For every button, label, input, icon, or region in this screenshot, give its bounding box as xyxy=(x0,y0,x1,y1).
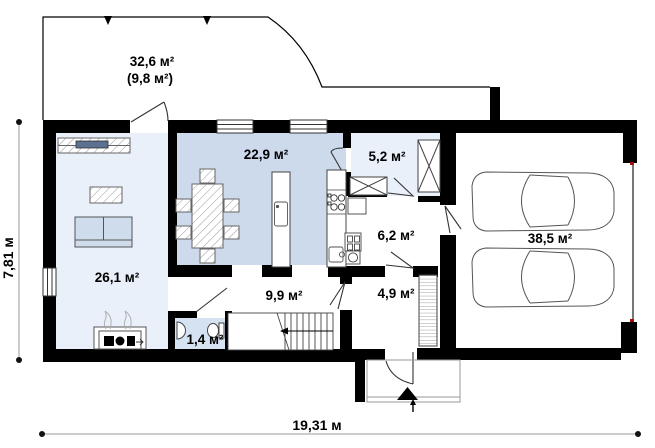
entry-wardrobe xyxy=(419,275,437,346)
sofa xyxy=(75,217,132,247)
room-label-living-room: 26,1 м² xyxy=(95,270,140,285)
room-label-terrace-note: (9,8 м²) xyxy=(127,71,173,86)
front-door xyxy=(386,352,413,384)
dimension-height-label: 7,81 м xyxy=(0,237,16,279)
kitchen-sink xyxy=(329,247,345,262)
tall-wardrobe xyxy=(418,140,440,192)
coffee-table xyxy=(90,187,122,203)
floor-plan-page: 7,81 м 19,31 м 32,6 м² (9,8 м²) 22,9 м² … xyxy=(0,0,655,448)
bathroom-entry-door xyxy=(386,252,413,268)
chair xyxy=(200,249,215,263)
room-label-hallway: 9,9 м² xyxy=(266,288,304,303)
chair xyxy=(176,226,191,239)
stairs xyxy=(228,313,333,350)
terrace-outline xyxy=(43,16,490,120)
roof-drain-arrow xyxy=(104,16,112,25)
cabinet xyxy=(348,198,366,214)
low-cabinet xyxy=(350,177,387,195)
entrance-arrow-icon xyxy=(397,387,418,400)
room-label-wc: 1,4 м² xyxy=(187,332,225,347)
window xyxy=(43,268,56,296)
tv-stand xyxy=(58,138,130,153)
terrace-door xyxy=(131,102,168,122)
room-label-terrace: 32,6 м² xyxy=(130,54,175,69)
room-label-entry: 4,9 м² xyxy=(378,286,416,301)
entrance-direction-arrow xyxy=(410,399,416,412)
bathroom-garage-door xyxy=(445,206,461,233)
room-label-garage: 38,5 м² xyxy=(528,231,573,246)
chair xyxy=(176,199,191,212)
dimension-bottom: 19,31 м xyxy=(39,417,641,437)
roof-drain-arrow xyxy=(203,16,211,25)
tv-icon xyxy=(76,141,108,148)
wc-door xyxy=(196,288,227,312)
kitchen-counter xyxy=(327,170,346,267)
hall-entry-door xyxy=(330,282,345,309)
room-label-pantry: 5,2 м² xyxy=(369,149,407,164)
window xyxy=(290,120,327,133)
room-label-kitchen-dining: 22,9 м² xyxy=(244,147,289,162)
car-icon xyxy=(472,172,614,231)
garage-gate xyxy=(630,162,634,322)
room-label-bathroom: 6,2 м² xyxy=(378,228,416,243)
bathroom-fixtures xyxy=(345,198,366,264)
dining-table xyxy=(192,184,223,248)
chair xyxy=(224,199,239,212)
window xyxy=(217,120,253,133)
washing-machine xyxy=(345,233,361,251)
kitchen-island xyxy=(272,172,290,267)
dimension-width-label: 19,31 м xyxy=(292,417,341,433)
dimension-left: 7,81 м xyxy=(0,119,22,363)
boiler xyxy=(346,251,360,264)
chair xyxy=(224,226,239,239)
chair xyxy=(200,169,215,183)
car-icon xyxy=(472,248,614,307)
floor-plan-drawing: 7,81 м 19,31 м 32,6 м² (9,8 м²) 22,9 м² … xyxy=(0,0,655,448)
